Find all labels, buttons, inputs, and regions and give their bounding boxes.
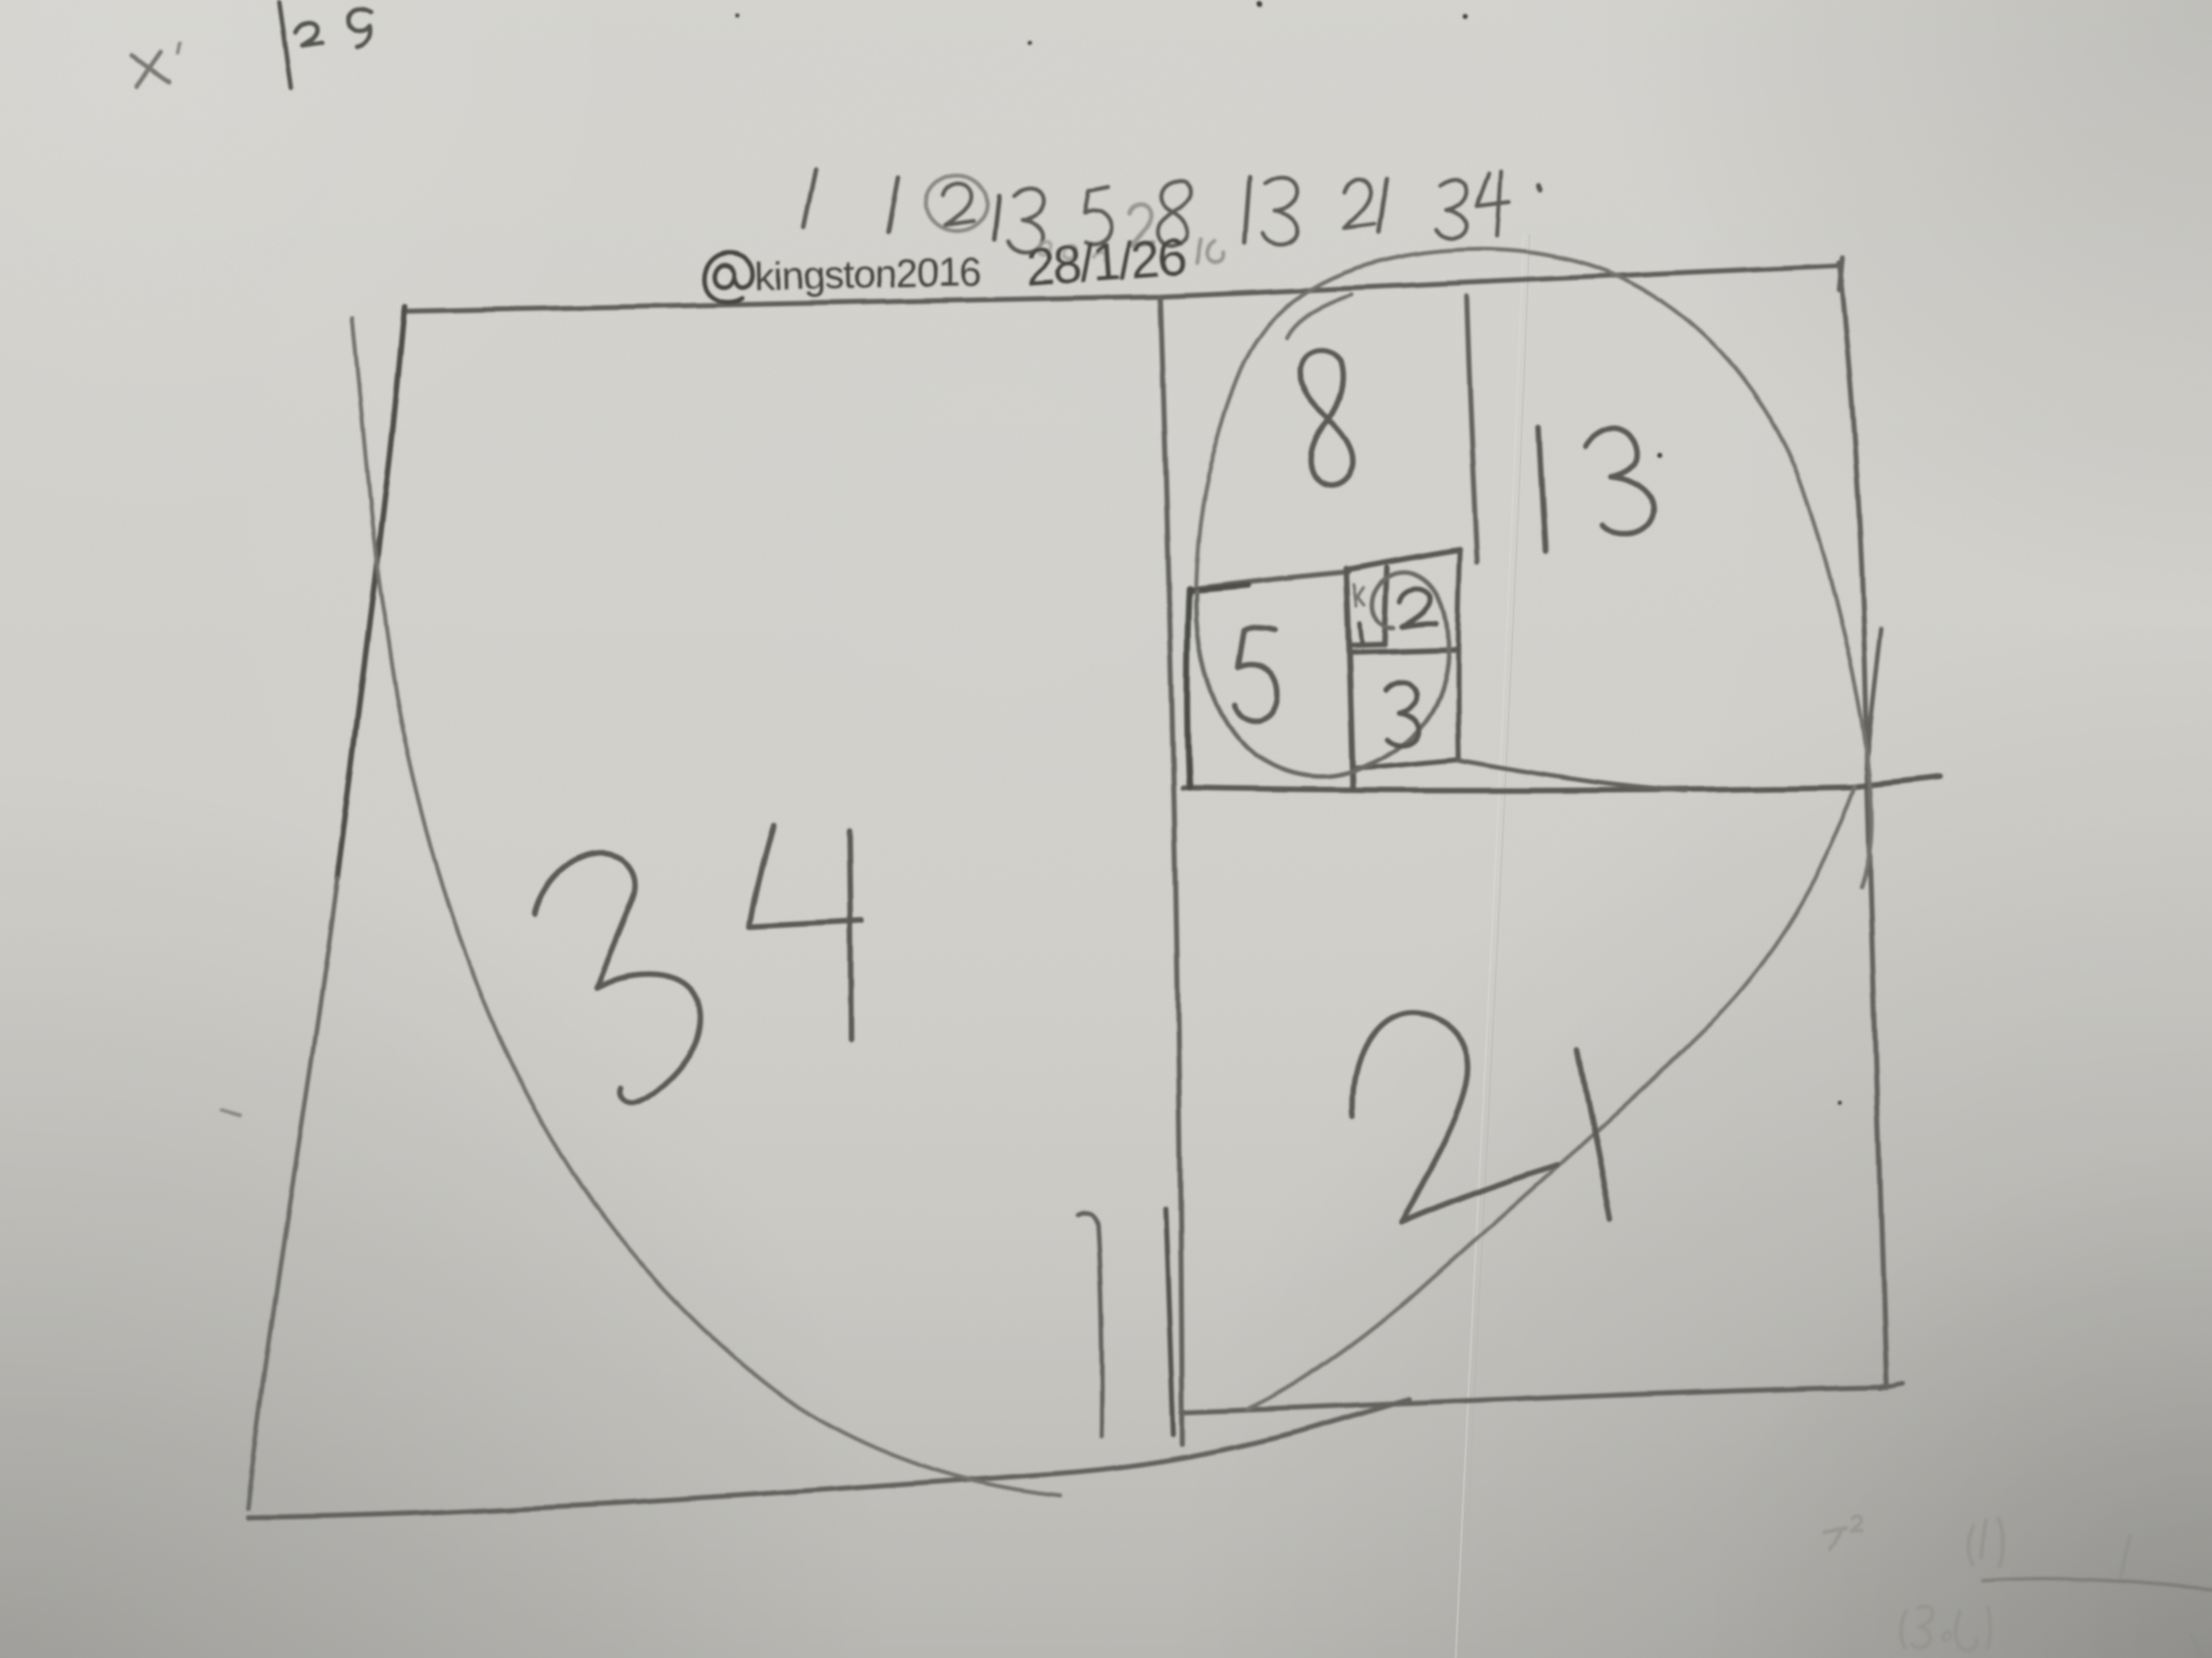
svg-text:kingston2016: kingston2016 bbox=[754, 250, 981, 299]
svg-text:28/1/26: 28/1/26 bbox=[1025, 228, 1187, 297]
